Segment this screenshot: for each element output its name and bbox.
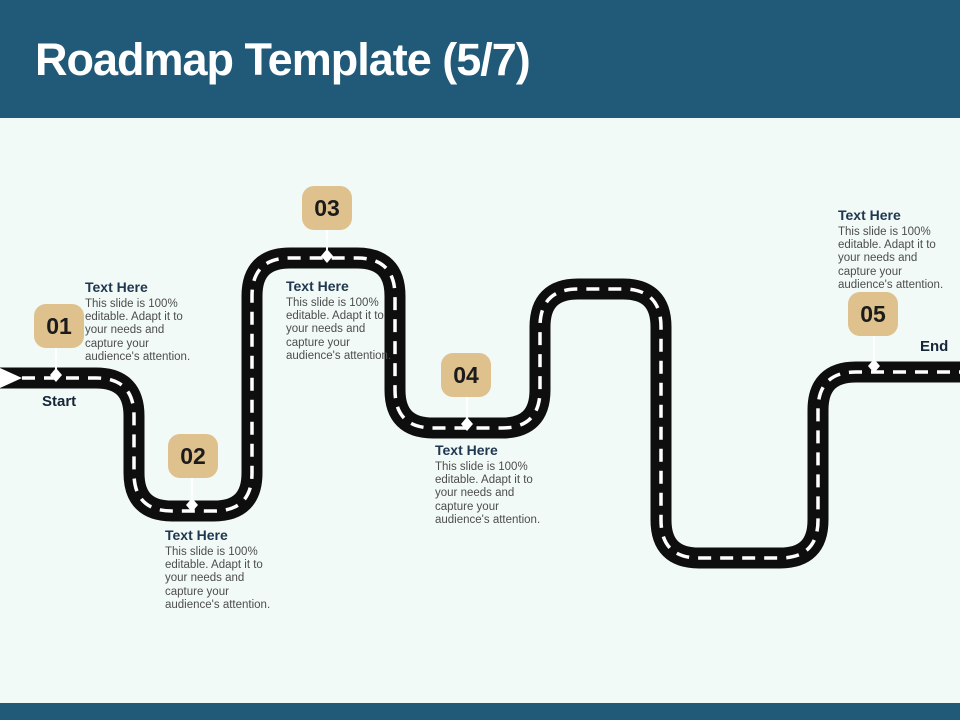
milestone-05-description: This slide is 100% editable. Adapt it to…	[838, 226, 950, 292]
footer-bar	[0, 703, 960, 720]
milestone-02-description: This slide is 100% editable. Adapt it to…	[165, 546, 277, 612]
milestone-03-description: This slide is 100% editable. Adapt it to…	[286, 297, 398, 363]
milestone-01-description: This slide is 100% editable. Adapt it to…	[85, 298, 197, 364]
end-label: End	[920, 338, 948, 355]
milestone-01-number: 01	[46, 313, 72, 340]
milestone-01-title: Text Here	[85, 279, 197, 295]
milestone-05-badge: 05	[848, 292, 898, 336]
start-label: Start	[42, 393, 76, 410]
milestone-04-number: 04	[453, 362, 479, 389]
milestone-04-textblock: Text Here This slide is 100% editable. A…	[435, 442, 547, 527]
milestone-04-badge: 04	[441, 353, 491, 397]
milestone-05-textblock: Text Here This slide is 100% editable. A…	[838, 207, 950, 292]
slide: Roadmap Template (5/7) 01 02 03 04 05 Te…	[0, 0, 960, 720]
milestone-04-title: Text Here	[435, 442, 547, 458]
milestone-02-number: 02	[180, 443, 206, 470]
milestone-05-title: Text Here	[838, 207, 950, 223]
milestone-01-badge: 01	[34, 304, 84, 348]
milestone-03-number: 03	[314, 195, 340, 222]
milestone-04-description: This slide is 100% editable. Adapt it to…	[435, 461, 547, 527]
milestone-01-textblock: Text Here This slide is 100% editable. A…	[85, 279, 197, 364]
milestone-03-title: Text Here	[286, 278, 398, 294]
milestone-05-number: 05	[860, 301, 886, 328]
milestone-02-badge: 02	[168, 434, 218, 478]
milestone-02-title: Text Here	[165, 527, 277, 543]
milestone-02-textblock: Text Here This slide is 100% editable. A…	[165, 527, 277, 612]
milestone-03-textblock: Text Here This slide is 100% editable. A…	[286, 278, 398, 363]
milestone-03-badge: 03	[302, 186, 352, 230]
